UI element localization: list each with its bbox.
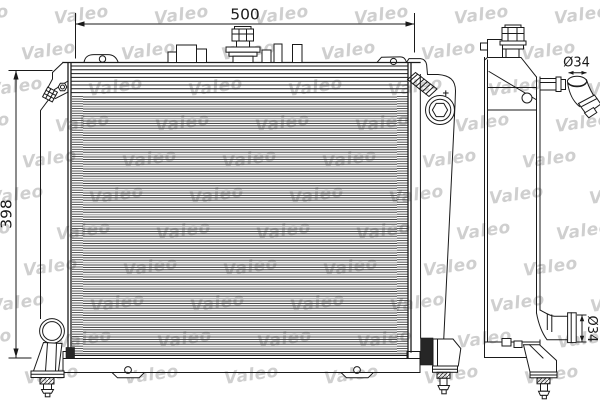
core-left-fin-strip (72, 96, 83, 354)
cap-top (235, 27, 252, 30)
bleed-hex-nut (58, 83, 67, 90)
watermark-text: Valeo (421, 146, 478, 173)
dimension-inlet-diameter: Ø34 (563, 56, 590, 75)
arrow-up (13, 71, 18, 80)
lower-hose-tube-edge (41, 101, 49, 319)
rubber-pad-right (421, 338, 433, 365)
foot-pin (440, 378, 447, 385)
foot-pin (44, 384, 52, 390)
foot-body (34, 343, 63, 372)
fitting-post (274, 44, 282, 63)
foot-bushing (40, 378, 54, 385)
stub-body (540, 79, 556, 91)
cap-flange (500, 41, 526, 45)
fitting-post (293, 45, 303, 63)
core-fins (83, 96, 397, 354)
clip (514, 341, 522, 348)
side-tank-port (522, 93, 532, 103)
arrow-right (406, 21, 415, 26)
fitting-block (177, 45, 197, 63)
watermark-text: Valeo (420, 38, 477, 65)
stub-ring (556, 77, 561, 92)
watermark-text: Valeo (20, 38, 77, 65)
watermark-text: Valeo (0, 74, 44, 101)
foot-bushing (437, 372, 450, 378)
foot-pin-tip (45, 393, 50, 397)
cap-flange (229, 52, 257, 56)
arrow-up (580, 315, 584, 321)
watermark-text: Valeo (522, 254, 579, 281)
height-label: 398 (0, 199, 16, 229)
lower-hose-port-ring (40, 319, 65, 344)
watermark-text: Valeo (555, 218, 600, 245)
watermark-text: Valeo (21, 146, 78, 173)
watermark-text: Valeo (455, 218, 512, 245)
outlet-diameter-label: Ø34 (584, 316, 599, 343)
watermark-text: Valeo (453, 2, 510, 29)
clip (502, 339, 511, 347)
cap-flange (226, 47, 260, 52)
watermark-text: Valeo (253, 2, 310, 29)
watermark-text: Valeo (454, 110, 511, 137)
plus-mark: + (442, 89, 450, 99)
bracket-notch (481, 43, 488, 50)
radiator-technical-drawing: ValeoValeoValeoValeoValeoValeoValeoValeo… (0, 0, 600, 400)
upper-pipe-stub (540, 77, 566, 92)
watermark-text: Valeo (0, 290, 46, 317)
bracket-bushing (537, 378, 550, 384)
mounting-bracket-top-left (84, 55, 118, 63)
stub-tip (561, 80, 566, 90)
drain-plug-boss (426, 96, 455, 125)
foot-pin-tip (442, 390, 446, 394)
watermark-text: Valeo (521, 146, 578, 173)
fitting-block (197, 49, 207, 63)
cap-hex-head (232, 29, 254, 41)
watermark-text: Valeo (353, 2, 410, 29)
hose-port-outer (40, 319, 65, 344)
rubber-pad-left (66, 348, 75, 359)
fitting-block (262, 50, 271, 63)
mounting-foot-left (31, 343, 64, 397)
watermark-text: Valeo (223, 362, 280, 389)
cap-top (505, 25, 521, 28)
pipe-flange (568, 313, 577, 343)
bracket-pin (541, 384, 548, 391)
foot-pin-flare (42, 390, 54, 394)
cap-hex-head (502, 28, 524, 42)
watermark-text: Valeo (588, 182, 600, 209)
core-right-fin-strip (397, 96, 408, 354)
arrow-down (13, 349, 18, 358)
watermark-text: Valeo (0, 2, 10, 29)
watermark-text: Valeo (0, 326, 13, 353)
foot-pin-flare (438, 386, 450, 390)
dimension-outlet-diameter: Ø34 (578, 315, 600, 342)
cap-flange (503, 45, 524, 49)
watermark-text: Valeo (589, 290, 600, 317)
arrow-left (568, 71, 573, 75)
bracket-pin-tip (542, 395, 546, 398)
watermark-text: Valeo (489, 290, 546, 317)
inlet-diameter-label: Ø34 (563, 56, 590, 71)
watermark-text: Valeo (320, 38, 377, 65)
cap-base (233, 56, 253, 62)
watermark-text: Valeo (553, 2, 600, 29)
bracket-pin-flare (539, 391, 550, 395)
bracket-tab (377, 57, 407, 63)
core (48, 63, 420, 358)
arrow-right (582, 71, 587, 75)
side-top-bracket (481, 40, 503, 58)
watermark-text: Valeo (422, 254, 479, 281)
width-label: 500 (230, 6, 260, 24)
fitting-block (168, 52, 177, 63)
cap-neck (237, 41, 250, 47)
watermark-text: Valeo (0, 110, 11, 137)
cap-neck (506, 49, 519, 58)
drawing-canvas: ValeoValeoValeoValeoValeoValeoValeoValeo… (0, 0, 600, 400)
watermark-text: Valeo (153, 2, 210, 29)
